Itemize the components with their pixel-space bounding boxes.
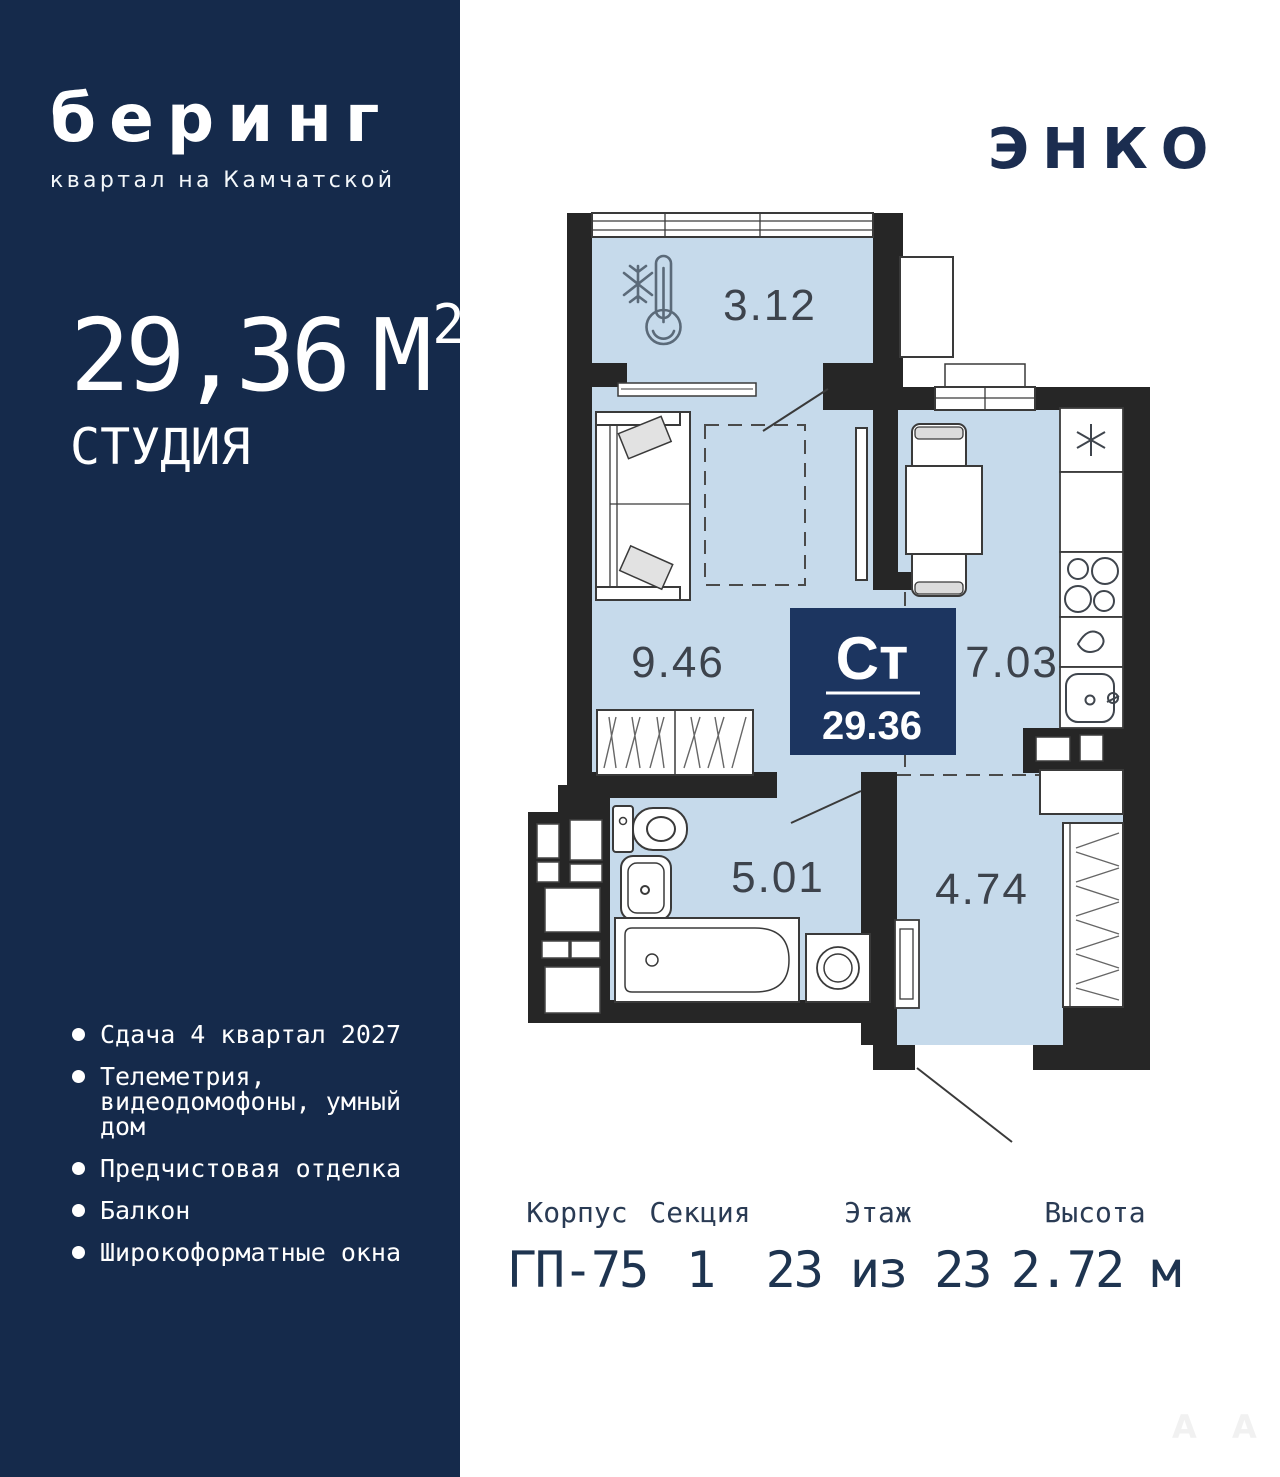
flyer-page: беринг квартал на Камчатской 29,36 М 2 С… [0,0,1280,1477]
watermark-letter: А [1232,1408,1257,1446]
kitchen-counter [1060,408,1123,728]
living-area-label: 9.46 [631,638,725,687]
living-wardrobe [597,710,753,775]
tv-panel [856,428,867,580]
kitchen-area-label: 7.03 [965,638,1059,687]
info-section: Секция 1 [649,1196,750,1299]
info-label: Секция [649,1196,750,1229]
balcony-window [592,213,873,237]
badge-area: 29.36 [822,704,922,748]
bathroom-area-label: 5.01 [731,853,825,902]
info-label: Высота [1011,1196,1180,1229]
toilet [613,806,687,852]
watermark-letter: А [1172,1408,1197,1446]
entrance-door-swing [917,1068,1012,1142]
kitchen-window [935,364,1035,410]
sofa [596,412,690,600]
info-height: Высота 2.72 м [1011,1196,1180,1299]
balcony-area-label: 3.12 [723,281,817,330]
hall-wardrobe [1063,823,1123,1007]
hall-niche [1040,770,1123,814]
balcony-exterior-basket [900,257,953,357]
info-floor: Этаж 23 из 23 [766,1196,991,1299]
washing-machine [806,934,870,1002]
apartment-badge: Ст 29.36 [790,608,956,755]
balcony-sill-window [618,383,756,396]
badge-type: Ст [836,625,909,692]
info-value: 2.72 м [1011,1241,1180,1299]
info-korpus: Корпус ГП-75 [507,1196,648,1299]
info-label: Этаж [766,1196,991,1229]
hall-panel [895,920,919,1008]
info-value: 23 из 23 [766,1241,991,1299]
info-value: 1 [649,1241,750,1299]
bathtub [615,918,799,1002]
hall-area-label: 4.74 [935,865,1029,914]
bathroom-sink [621,856,671,920]
duct-shafts [537,820,602,1013]
dining-table [906,466,982,554]
info-value: ГП-75 [507,1241,648,1299]
info-label: Корпус [507,1196,648,1229]
